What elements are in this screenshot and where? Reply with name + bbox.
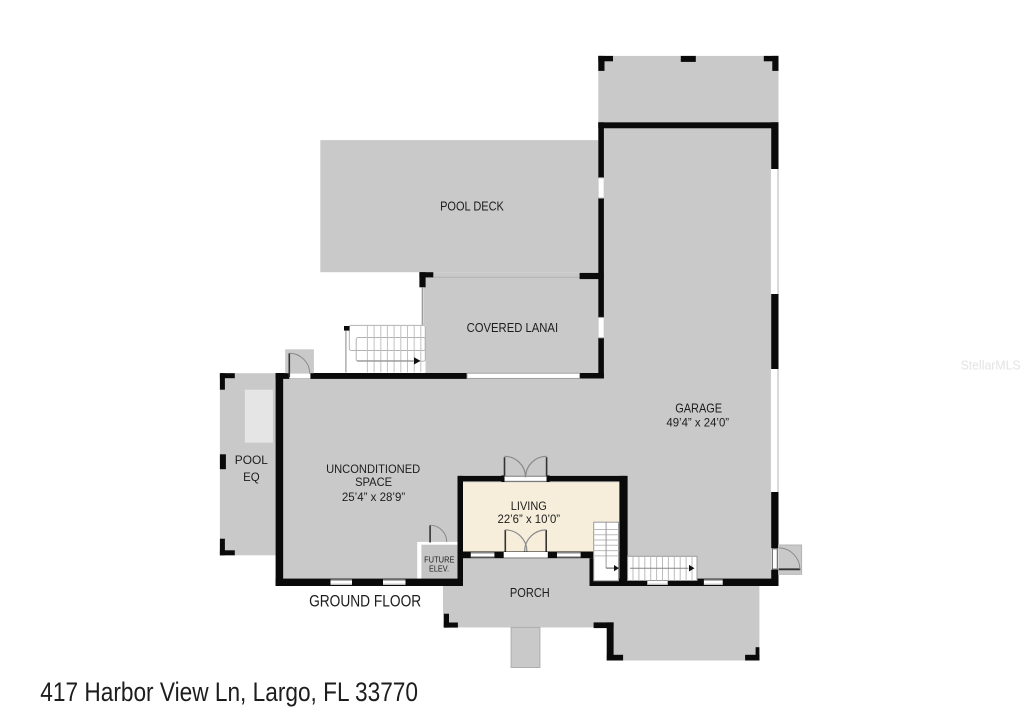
- svg-text:LIVING: LIVING: [511, 499, 547, 513]
- svg-text:SPACE: SPACE: [355, 475, 392, 489]
- svg-text:PORCH: PORCH: [510, 586, 550, 600]
- svg-text:22’6” x 10’0”: 22’6” x 10’0”: [498, 512, 561, 526]
- svg-text:FUTURE: FUTURE: [424, 556, 454, 565]
- svg-text:GROUND FLOOR: GROUND FLOOR: [309, 591, 421, 610]
- svg-text:UNCONDITIONED: UNCONDITIONED: [326, 462, 420, 476]
- svg-text:417 Harbor View Ln, Largo, FL: 417 Harbor View Ln, Largo, FL 33770: [40, 677, 418, 707]
- svg-text:POOL DECK: POOL DECK: [440, 199, 504, 213]
- svg-text:StellarMLS: StellarMLS: [961, 357, 1021, 372]
- svg-text:COVERED LANAI: COVERED LANAI: [467, 321, 558, 335]
- svg-text:ELEV.: ELEV.: [429, 565, 449, 574]
- svg-text:49’4” x 24’0”: 49’4” x 24’0”: [666, 415, 729, 429]
- svg-text:GARAGE: GARAGE: [675, 401, 722, 415]
- svg-text:POOL: POOL: [235, 453, 268, 467]
- svg-text:EQ: EQ: [243, 470, 260, 484]
- svg-text:25’4” x 28’9”: 25’4” x 28’9”: [342, 490, 405, 504]
